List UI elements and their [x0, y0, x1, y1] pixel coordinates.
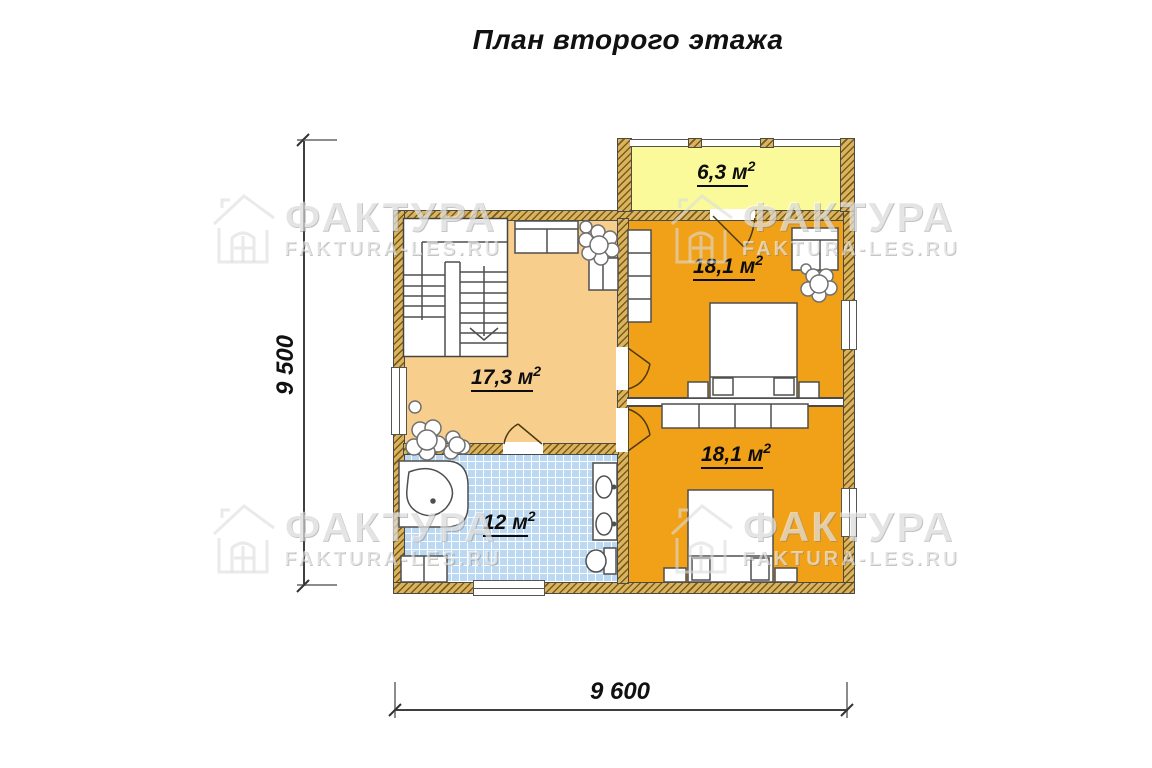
bed-bedroom-bottom: [664, 490, 797, 582]
corner-bathtub: [399, 461, 468, 527]
bathroom-shelf: [401, 556, 447, 582]
sofa: [515, 221, 578, 253]
area-label-bedroom-top: 18,1 м2: [693, 252, 763, 279]
staircase: [404, 219, 508, 357]
bed-bedroom-top: [688, 303, 819, 398]
desk-bedroom-top: [792, 228, 838, 270]
area-label-bedroom-bottom: 18,1 м2: [701, 440, 771, 467]
door-bedroom-top: [628, 348, 650, 389]
door-bathroom: [504, 424, 542, 444]
toilet: [586, 548, 616, 574]
area-label-balcony: 6,3 м2: [697, 158, 755, 185]
area-label-bathroom: 12 м2: [483, 508, 536, 535]
furniture-layer: [0, 0, 1152, 768]
wardrobe-bedroom-top: [628, 230, 651, 322]
dimension-label-height: 9 500: [272, 325, 300, 405]
dresser-bedroom-bottom: [662, 404, 808, 428]
double-sink-vanity: [593, 463, 617, 540]
dimension-label-width: 9 600: [560, 678, 680, 706]
area-label-hall: 17,3 м2: [471, 363, 541, 390]
floor-plan-canvas: План второго этажа: [0, 0, 1152, 768]
door-bedroom-bottom: [628, 409, 650, 451]
plant-hall-bottom: [406, 401, 470, 460]
door-balcony: [713, 216, 755, 247]
